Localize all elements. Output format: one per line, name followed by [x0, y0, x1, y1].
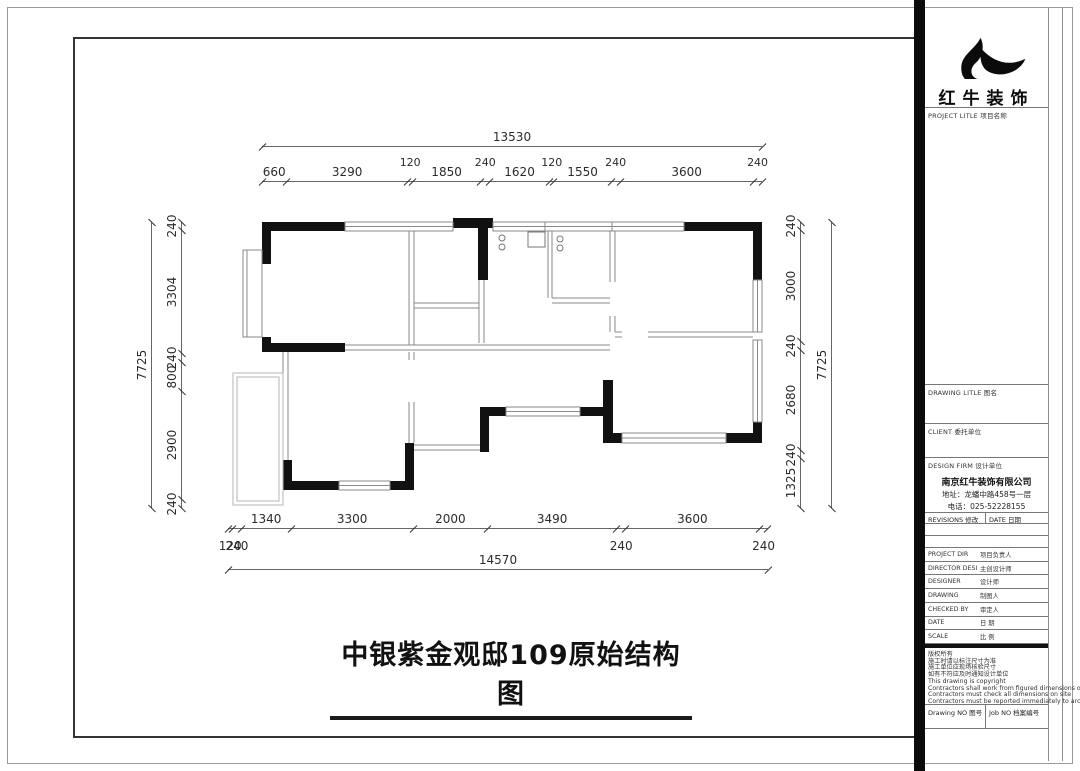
company-name: 南京红牛装饰有限公司: [925, 475, 1048, 488]
revisions-date-label: DATE 日期: [986, 513, 1021, 523]
titleblock-row: DRAWING制图人: [925, 589, 1048, 603]
design-firm-label: DESIGN FIRM 设计单位: [925, 458, 1048, 470]
revision-empty-row: [925, 536, 1048, 548]
titleblock-row: CHECKED BY审定人: [925, 603, 1048, 617]
dim-label: 1620: [504, 165, 535, 179]
brand-logo-icon: [945, 37, 1029, 79]
balcony: [233, 373, 283, 505]
revision-empty-row: [925, 524, 1048, 536]
drawing-no-label: Drawing NO 图号: [925, 705, 986, 728]
dim-label: 1550: [567, 165, 598, 179]
revisions-header: REVISIONS 修改 DATE 日期: [925, 513, 1048, 524]
drawing-title-label: DRAWING LITLE 图名: [925, 385, 1048, 397]
titleblock-row: SCALE比 例: [925, 630, 1048, 644]
partition-walls: [283, 231, 753, 460]
copyright-notes: 版权所有施工时请以标注尺寸为准施工单位应现场核验尺寸如有不符应及时通知设计单位T…: [925, 650, 1048, 705]
titleblock-row: DATE日 期: [925, 617, 1048, 631]
company-address: 地址：龙蟠中路458号一层: [925, 489, 1048, 500]
job-no-label: Job NO 档案编号: [986, 705, 1039, 728]
dim-label: 240: [610, 539, 633, 553]
drawing-title: 中银紫金观邸109原始结构图: [330, 633, 692, 720]
dim-label: 2000: [435, 512, 466, 526]
dim-label: 14570: [479, 553, 517, 567]
dim-top-total: 13530: [262, 146, 762, 147]
dim-bottom-total: 14570: [228, 569, 768, 570]
titleblock-divider: [925, 644, 1048, 648]
dim-label: 3300: [337, 512, 368, 526]
dim-label: 240: [747, 156, 768, 169]
company-phone: 电话：025-52228155: [925, 501, 1048, 512]
dim-label: 240: [165, 492, 179, 515]
drawing-title-section: DRAWING LITLE 图名: [925, 385, 1048, 424]
titleblock-person-rows: PROJECT DIR项目负责人DIRECTOR DESI主创设计师DESIGN…: [925, 548, 1048, 644]
logo-section: 红牛装饰: [925, 37, 1048, 108]
dim-label: 1325: [784, 468, 798, 499]
dim-label: 13530: [493, 130, 531, 144]
drawing-number-row: Drawing NO 图号 Job NO 档案编号: [925, 705, 1048, 729]
dim-left-total: 7725: [151, 222, 152, 508]
windows: [243, 222, 762, 490]
dim-left-segments: 24033042408002900240: [181, 222, 182, 508]
project-title-section: PROJECT LITLE 项目名称: [925, 108, 1048, 385]
dim-bottom-segments: 12024013403300200034902403600240: [228, 528, 768, 529]
dim-label: 7725: [135, 350, 149, 381]
dim-label: 2900: [165, 430, 179, 461]
dim-label: 3600: [677, 512, 708, 526]
dim-label: 3490: [537, 512, 568, 526]
titleblock-row: PROJECT DIR项目负责人: [925, 548, 1048, 562]
dim-top-segments: 66032901201850240162012015502403600240: [262, 181, 762, 182]
company-info: 南京红牛装饰有限公司 地址：龙蟠中路458号一层 电话：025-52228155: [925, 475, 1048, 512]
revisions-label: REVISIONS 修改: [925, 513, 986, 523]
dim-label: 1850: [431, 165, 462, 179]
dim-label: 660: [263, 165, 286, 179]
dim-label: 240: [475, 156, 496, 169]
dim-label: 120: [541, 156, 562, 169]
dim-label: 240: [225, 539, 248, 553]
brand-name: 红牛装饰: [925, 84, 1048, 109]
dim-right-total: 7725: [831, 222, 832, 508]
dim-label: 240: [752, 539, 775, 553]
dim-label: 3290: [332, 165, 363, 179]
dim-label: 240: [605, 156, 626, 169]
structural-walls: [262, 218, 762, 490]
dim-label: 7725: [815, 350, 829, 381]
titleblock-row: DESIGNER设计师: [925, 575, 1048, 589]
dim-label: 2680: [784, 385, 798, 416]
dim-label: 3304: [165, 277, 179, 308]
dim-label: 800: [165, 365, 179, 388]
dim-label: 3600: [671, 165, 702, 179]
project-title-label: PROJECT LITLE 项目名称: [925, 108, 1048, 120]
dim-right-segments: 240300024026802401325: [800, 222, 801, 508]
dim-label: 120: [400, 156, 421, 169]
titleblock-row: DIRECTOR DESI主创设计师: [925, 562, 1048, 576]
client-section: CLIENT 委托单位: [925, 424, 1048, 458]
dim-label: 1340: [251, 512, 282, 526]
client-label: CLIENT 委托单位: [925, 424, 1048, 436]
kitchen-fixtures: [499, 232, 563, 251]
dim-label: 3000: [784, 271, 798, 302]
design-firm-section: DESIGN FIRM 设计单位 南京红牛装饰有限公司 地址：龙蟠中路458号一…: [925, 458, 1048, 513]
